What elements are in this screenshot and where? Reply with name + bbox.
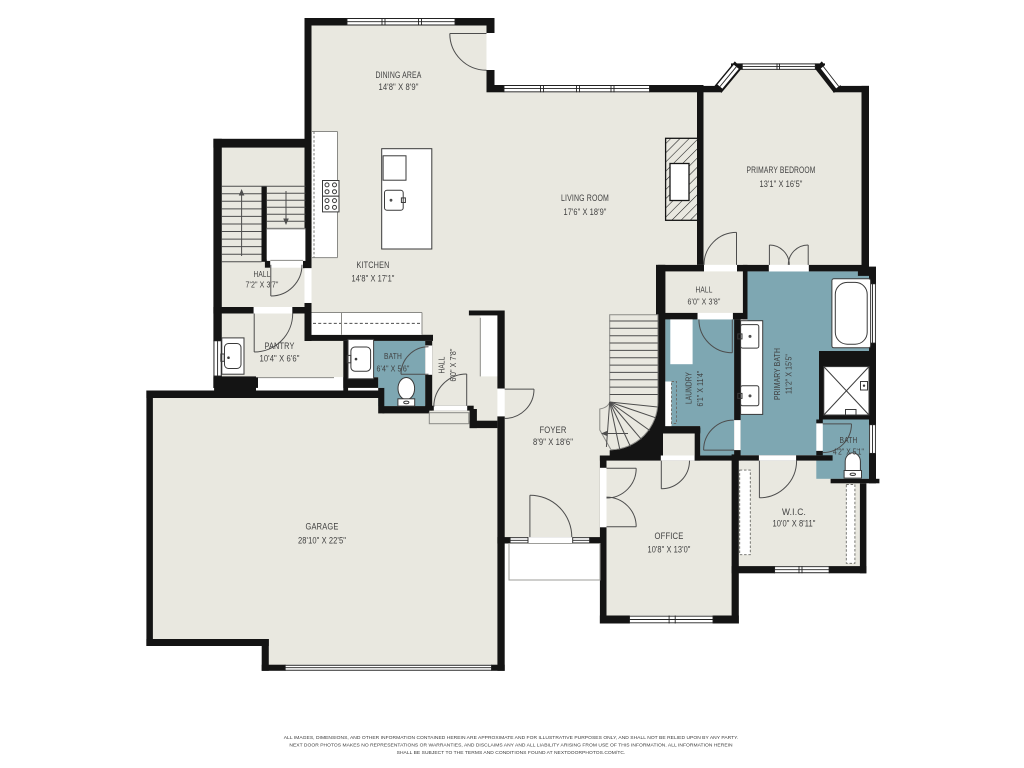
svg-text:ALL IMAGES, DIMENSIONS, AND OT: ALL IMAGES, DIMENSIONS, AND OTHER INFORM… (284, 735, 739, 741)
svg-text:10'0" X 8'11": 10'0" X 8'11" (773, 519, 816, 529)
svg-text:10'4" X 6'6": 10'4" X 6'6" (260, 354, 300, 364)
svg-text:BATH: BATH (840, 436, 858, 445)
svg-text:6'0" X 7'8": 6'0" X 7'8" (449, 348, 458, 381)
svg-text:GARAGE: GARAGE (306, 521, 339, 532)
svg-text:DINING AREA: DINING AREA (376, 69, 422, 80)
svg-text:13'1" X 16'5": 13'1" X 16'5" (760, 179, 803, 189)
svg-text:HALL: HALL (438, 356, 447, 373)
svg-text:14'8" X 8'9": 14'8" X 8'9" (379, 82, 419, 92)
svg-text:6'0" X 3'8": 6'0" X 3'8" (688, 298, 721, 307)
svg-text:PANTRY: PANTRY (265, 340, 295, 351)
svg-text:28'10" X 22'5": 28'10" X 22'5" (298, 536, 346, 546)
svg-text:4'2" X 5'1": 4'2" X 5'1" (833, 448, 864, 457)
svg-text:8'9" X 18'6": 8'9" X 18'6" (533, 437, 573, 447)
svg-text:17'6" X 18'9": 17'6" X 18'9" (564, 207, 607, 217)
svg-text:W.I.C.: W.I.C. (782, 506, 806, 517)
svg-text:LAUNDRY: LAUNDRY (685, 372, 694, 404)
svg-text:SHALL BE SUBJECT TO THE TERMS: SHALL BE SUBJECT TO THE TERMS AND CONDIT… (397, 750, 626, 756)
svg-text:NEXT DOOR PHOTOS MAKES NO REPR: NEXT DOOR PHOTOS MAKES NO REPRESENTATION… (289, 743, 733, 749)
svg-text:FOYER: FOYER (540, 424, 567, 435)
svg-text:PRIMARY BEDROOM: PRIMARY BEDROOM (747, 164, 816, 175)
svg-text:HALL: HALL (696, 286, 713, 295)
svg-text:KITCHEN: KITCHEN (357, 259, 390, 270)
svg-text:HALL: HALL (254, 270, 271, 279)
svg-text:14'8" X 17'1": 14'8" X 17'1" (352, 274, 395, 284)
svg-text:BATH: BATH (384, 352, 402, 361)
svg-text:6'4" X 5'6": 6'4" X 5'6" (377, 365, 410, 374)
svg-text:10'8" X 13'0": 10'8" X 13'0" (648, 545, 691, 555)
svg-text:7'2" X 3'7": 7'2" X 3'7" (246, 281, 279, 290)
svg-text:OFFICE: OFFICE (655, 530, 684, 541)
svg-text:6'1" X 11'4": 6'1" X 11'4" (696, 370, 705, 406)
svg-text:LIVING ROOM: LIVING ROOM (561, 192, 609, 203)
svg-text:11'2" X 15'5": 11'2" X 15'5" (785, 354, 794, 394)
svg-text:PRIMARY BATH: PRIMARY BATH (773, 348, 782, 400)
